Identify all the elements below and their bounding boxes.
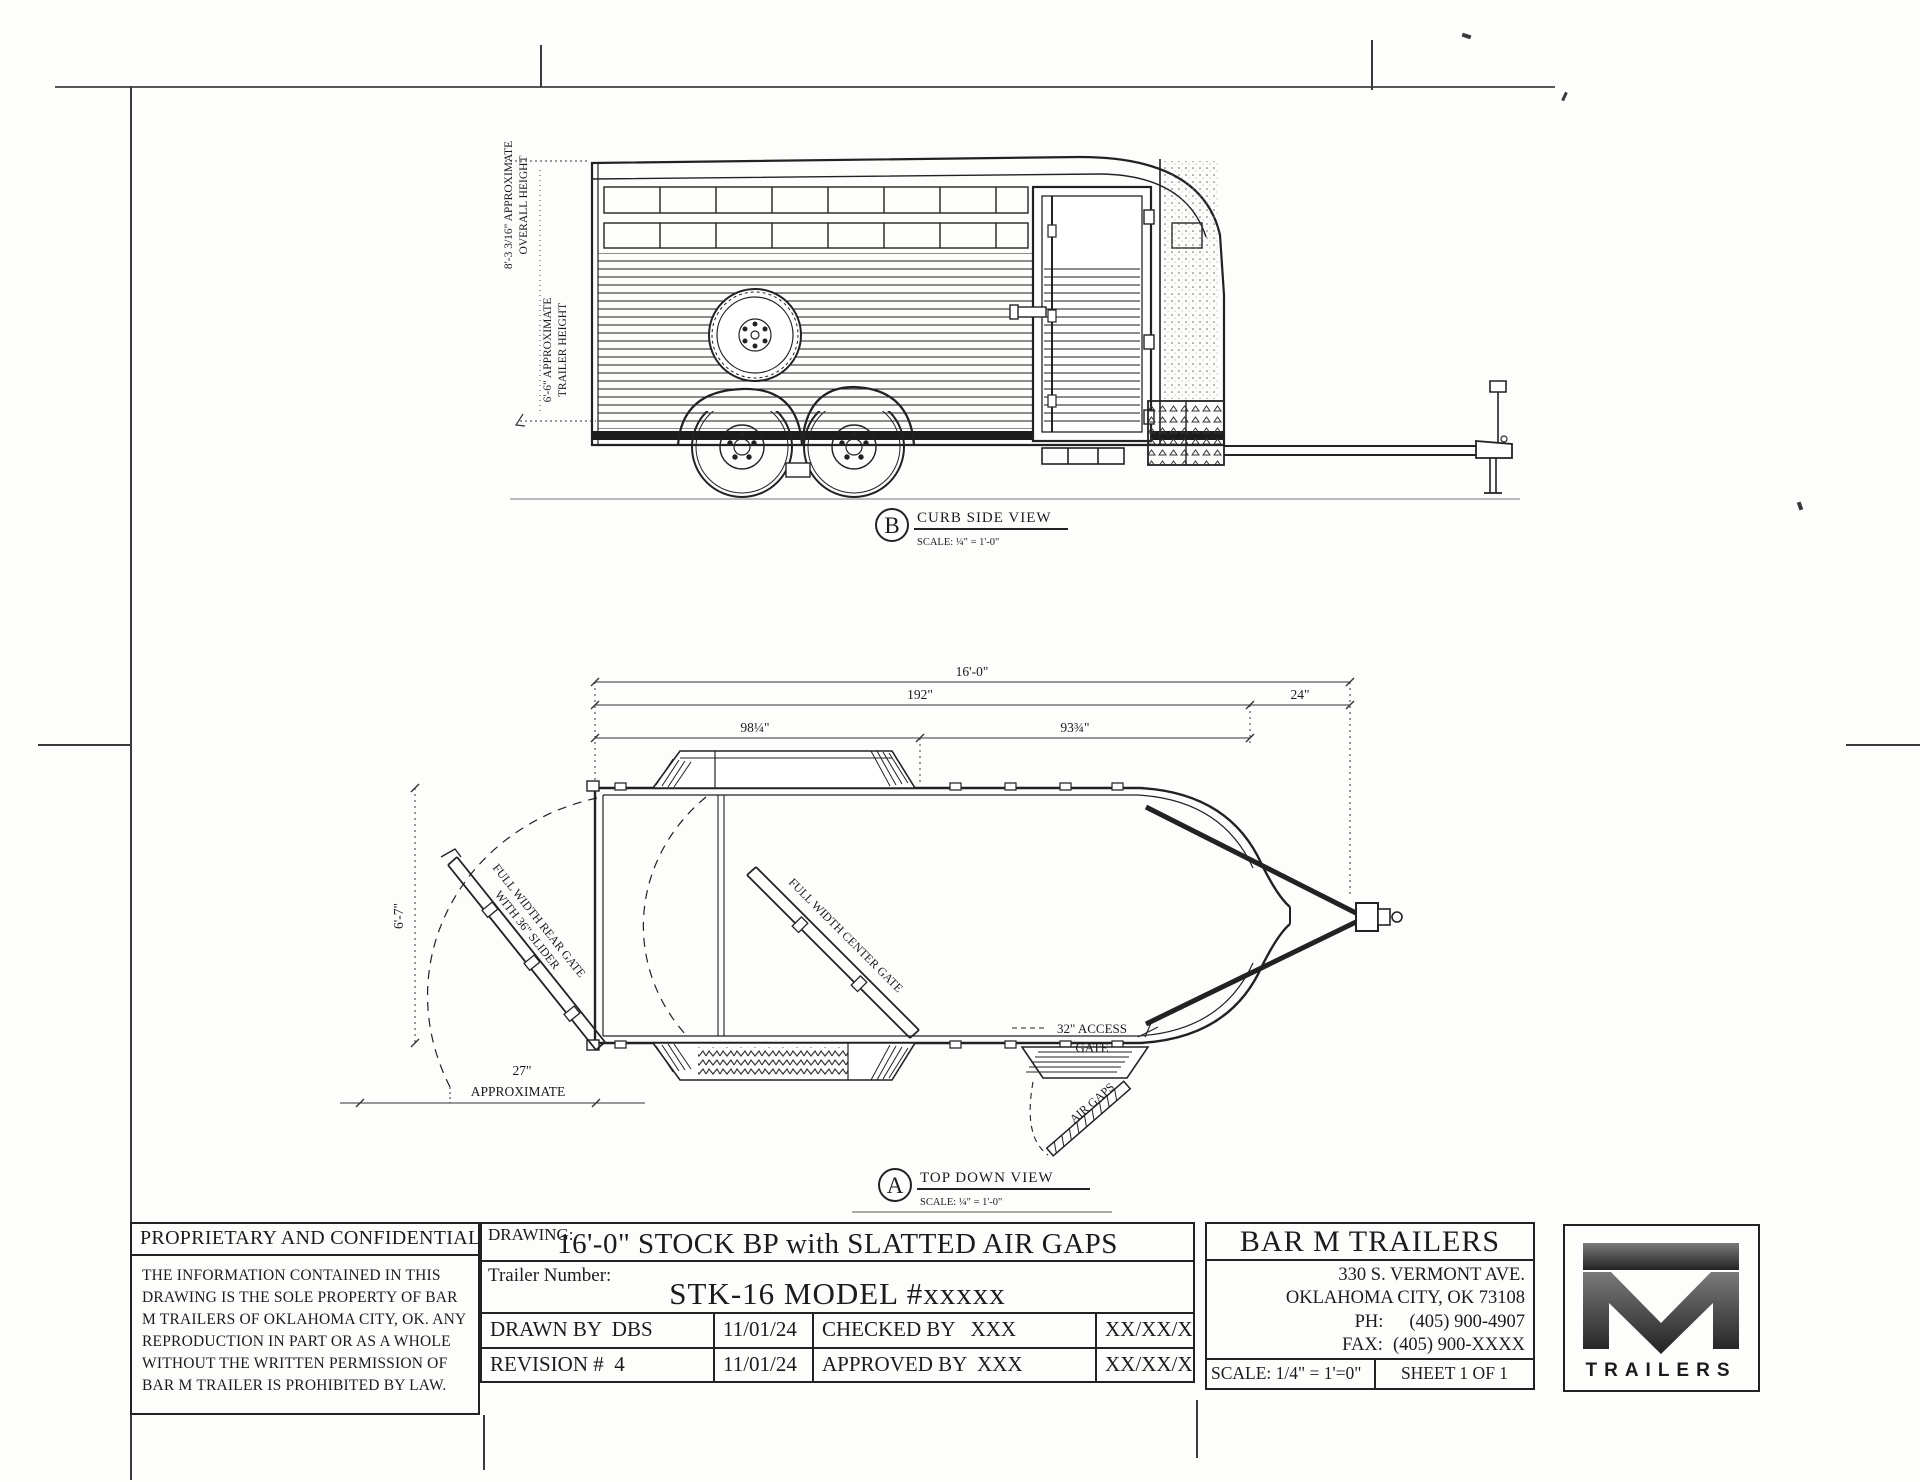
logo-bar — [1583, 1243, 1739, 1270]
company-block: BAR M TRAILERS 330 S. VERMONT AVE. OKLAH… — [1205, 1222, 1535, 1390]
drawn-date-cell: 11/01/24 — [715, 1314, 814, 1347]
table-row: REVISION # 4 11/01/24 APPROVED BY XXX XX… — [482, 1349, 1193, 1382]
callout-b-title: CURB SIDE VIEW — [917, 510, 1052, 526]
swing-dim-word: APPROXIMATE — [471, 1084, 566, 1099]
dim-rear-section: 98¼" — [740, 720, 769, 735]
scale-sheet-row: SCALE: 1/4" = 1'=0" SHEET 1 OF 1 — [1207, 1358, 1533, 1388]
callout-a: A TOP DOWN VIEW SCALE: ¼" = 1'-0" — [852, 1169, 1112, 1212]
access-gate-label-line2: GATE — [1075, 1040, 1108, 1055]
company-address-2: OKLAHOMA CITY, OK 73108 — [1207, 1287, 1525, 1310]
checked-date-cell: XX/XX/XX — [1097, 1314, 1193, 1347]
rear-gate-label: FULL WIDTH REAR GATE WITH 36" SLIDER — [478, 861, 588, 989]
plan-bottom-fender — [653, 1043, 915, 1080]
proprietary-heading: PROPRIETARY AND CONFIDENTIAL — [132, 1224, 478, 1256]
proprietary-block: PROPRIETARY AND CONFIDENTIAL THE INFORMA… — [130, 1222, 480, 1415]
sheet-top-tick-1 — [540, 45, 542, 87]
table-row: DRAWN BY DBS 11/01/24 CHECKED BY XXX XX/… — [482, 1314, 1193, 1349]
door-step — [1042, 448, 1124, 464]
plan-body — [587, 781, 1290, 1050]
plan-tongue — [1146, 807, 1402, 1024]
bar-m-logo: TRAILERS — [1565, 1226, 1758, 1390]
drawing-title: 16'-0" STOCK BP with SLATTED AIR GAPS — [482, 1228, 1193, 1261]
trailer-number: STK-16 MODEL #xxxxx — [482, 1276, 1193, 1312]
callout-b-letter: B — [884, 513, 899, 538]
trailer-height-label-2: TRAILER HEIGHT — [557, 303, 569, 397]
rear-gate-open — [428, 798, 605, 1087]
fax-value: (405) 900-XXXX — [1393, 1335, 1525, 1355]
overall-height-label-2: OVERALL HEIGHT — [518, 156, 530, 255]
drawn-by-cell: DRAWN BY DBS — [482, 1314, 715, 1347]
checked-by-cell: CHECKED BY XXX — [814, 1314, 1097, 1347]
front-nose — [1148, 159, 1224, 465]
center-gate-open — [643, 797, 919, 1038]
sheet-number: SHEET 1 OF 1 — [1376, 1360, 1533, 1388]
drawing-info-block: DRAWING: 16'-0" STOCK BP with SLATTED AI… — [480, 1222, 1195, 1383]
logo-block: TRAILERS — [1563, 1224, 1760, 1392]
approved-by-cell: APPROVED BY XXX — [814, 1349, 1097, 1382]
swing-dim-value: 27" — [512, 1063, 531, 1078]
dim-overall-length: 16'-0" — [956, 664, 989, 679]
callout-a-title: TOP DOWN VIEW — [920, 1170, 1054, 1186]
center-gate-label: FULL WIDTH CENTER GATE — [786, 875, 906, 995]
scan-artifact-1 — [1462, 33, 1472, 40]
revision-cell: REVISION # 4 — [482, 1349, 715, 1382]
sheet-bottom-stub-1 — [483, 1415, 485, 1470]
tongue-hitch — [1224, 381, 1512, 493]
sheet-top-tick-2 — [1371, 40, 1373, 90]
height-dimensions: 8'-3 3/16" APPROXIMATE OVERALL HEIGHT 6'… — [503, 141, 596, 426]
trailer-number-row: Trailer Number: STK-16 MODEL #xxxxx — [482, 1262, 1193, 1314]
dim-front-section: 93¾" — [1060, 720, 1089, 735]
plan-top-fender — [653, 751, 915, 788]
revision-date-cell: 11/01/24 — [715, 1349, 814, 1382]
logo-trailers-text: TRAILERS — [1586, 1360, 1737, 1381]
width-dimension — [411, 784, 419, 1047]
approved-date-cell: XX/XX/XX — [1097, 1349, 1193, 1382]
scan-artifact-3 — [1797, 502, 1803, 511]
fax-label: FAX: — [1342, 1334, 1383, 1357]
scale-value: SCALE: 1/4" = 1'=0" — [1207, 1360, 1376, 1388]
logo-m-letter — [1583, 1272, 1739, 1354]
dim-body-length: 192" — [907, 687, 933, 702]
proprietary-body: THE INFORMATION CONTAINED IN THIS DRAWIN… — [132, 1256, 478, 1406]
callout-a-scale: SCALE: ¼" = 1'-0" — [920, 1197, 1002, 1208]
callout-b-scale: SCALE: ¼" = 1'-0" — [917, 537, 999, 548]
jack-crank — [1490, 381, 1506, 392]
dim-tongue-length: 24" — [1290, 687, 1309, 702]
company-address-1: 330 S. VERMONT AVE. — [1207, 1264, 1525, 1287]
phone-label: PH: — [1355, 1311, 1384, 1334]
dim-width: 6'-7" — [391, 903, 406, 929]
callout-b: B CURB SIDE VIEW SCALE: ¼" = 1'-0" — [876, 509, 1068, 548]
trailer-height-label: 6'-6" APPROXIMATE — [542, 298, 554, 403]
center-gate-label-text: FULL WIDTH CENTER GATE — [786, 875, 906, 995]
curb-side-view-drawing: 8'-3 3/16" APPROXIMATE OVERALL HEIGHT 6'… — [420, 95, 1600, 580]
sheet-right-tick — [1846, 744, 1920, 746]
company-name: BAR M TRAILERS — [1207, 1224, 1533, 1261]
company-fax: FAX:(405) 900-XXXX — [1207, 1334, 1525, 1357]
callout-a-letter: A — [887, 1173, 904, 1198]
top-down-view-drawing: 16'-0" 192" 24" 98¼" 93¾" 6'-7" — [300, 635, 1570, 1230]
spare-tire — [709, 289, 801, 381]
sheet-left-tick — [38, 744, 130, 746]
phone-value: (405) 900-4907 — [1409, 1312, 1525, 1332]
drawing-title-row: DRAWING: 16'-0" STOCK BP with SLATTED AI… — [482, 1224, 1193, 1262]
access-gate-label-line1: 32" ACCESS — [1057, 1021, 1127, 1036]
overall-height-label: 8'-3 3/16" APPROXIMATE — [503, 141, 515, 269]
sheet-top-border — [55, 86, 1555, 88]
company-phone: PH:(405) 900-4907 — [1207, 1311, 1525, 1334]
sheet-bottom-stub-2 — [1196, 1400, 1198, 1458]
